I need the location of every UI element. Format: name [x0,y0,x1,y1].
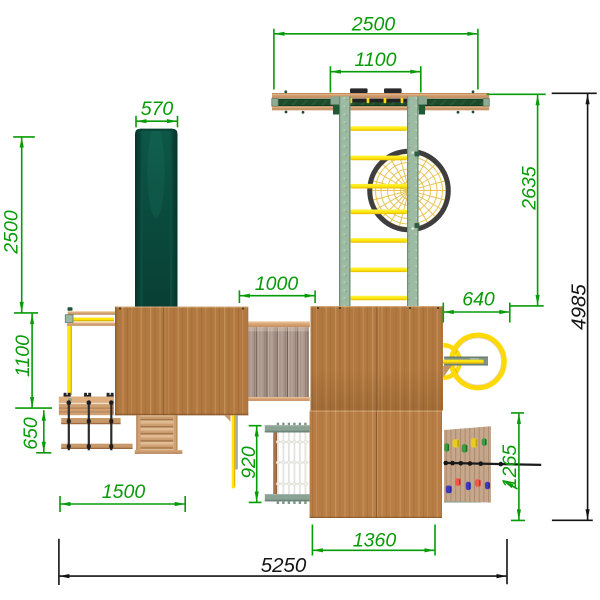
svg-text:2500: 2500 [351,14,396,36]
svg-text:1500: 1500 [102,481,146,503]
svg-text:640: 640 [462,288,495,310]
svg-text:5250: 5250 [261,554,307,577]
svg-text:1265: 1265 [499,445,521,489]
svg-text:920: 920 [238,446,260,479]
svg-text:570: 570 [141,98,174,120]
svg-text:2500: 2500 [0,210,22,255]
svg-text:2635: 2635 [518,166,540,211]
svg-text:1100: 1100 [12,335,34,377]
svg-text:1100: 1100 [355,49,397,71]
svg-text:650: 650 [20,417,42,450]
svg-text:1000: 1000 [255,273,299,295]
svg-text:1360: 1360 [353,529,397,551]
svg-text:4985: 4985 [568,284,591,330]
